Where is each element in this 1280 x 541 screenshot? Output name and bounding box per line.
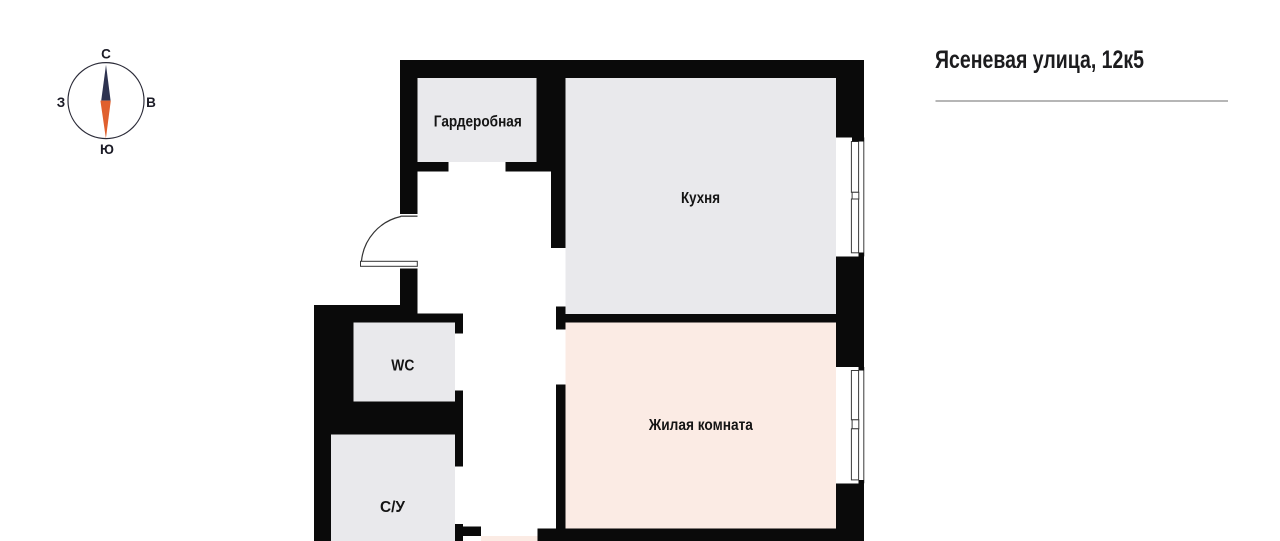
svg-text:WC: WC xyxy=(391,358,414,375)
svg-text:В: В xyxy=(146,95,156,110)
svg-text:Гардеробная: Гардеробная xyxy=(434,114,522,131)
svg-text:З: З xyxy=(57,95,65,110)
svg-text:Ясеневая улица, 12к5: Ясеневая улица, 12к5 xyxy=(935,46,1144,74)
svg-text:С/У: С/У xyxy=(380,499,406,516)
svg-text:Кухня: Кухня xyxy=(681,190,720,207)
svg-text:С: С xyxy=(101,47,111,62)
svg-text:Жилая комната: Жилая комната xyxy=(648,417,753,434)
svg-text:Ю: Ю xyxy=(100,142,114,157)
